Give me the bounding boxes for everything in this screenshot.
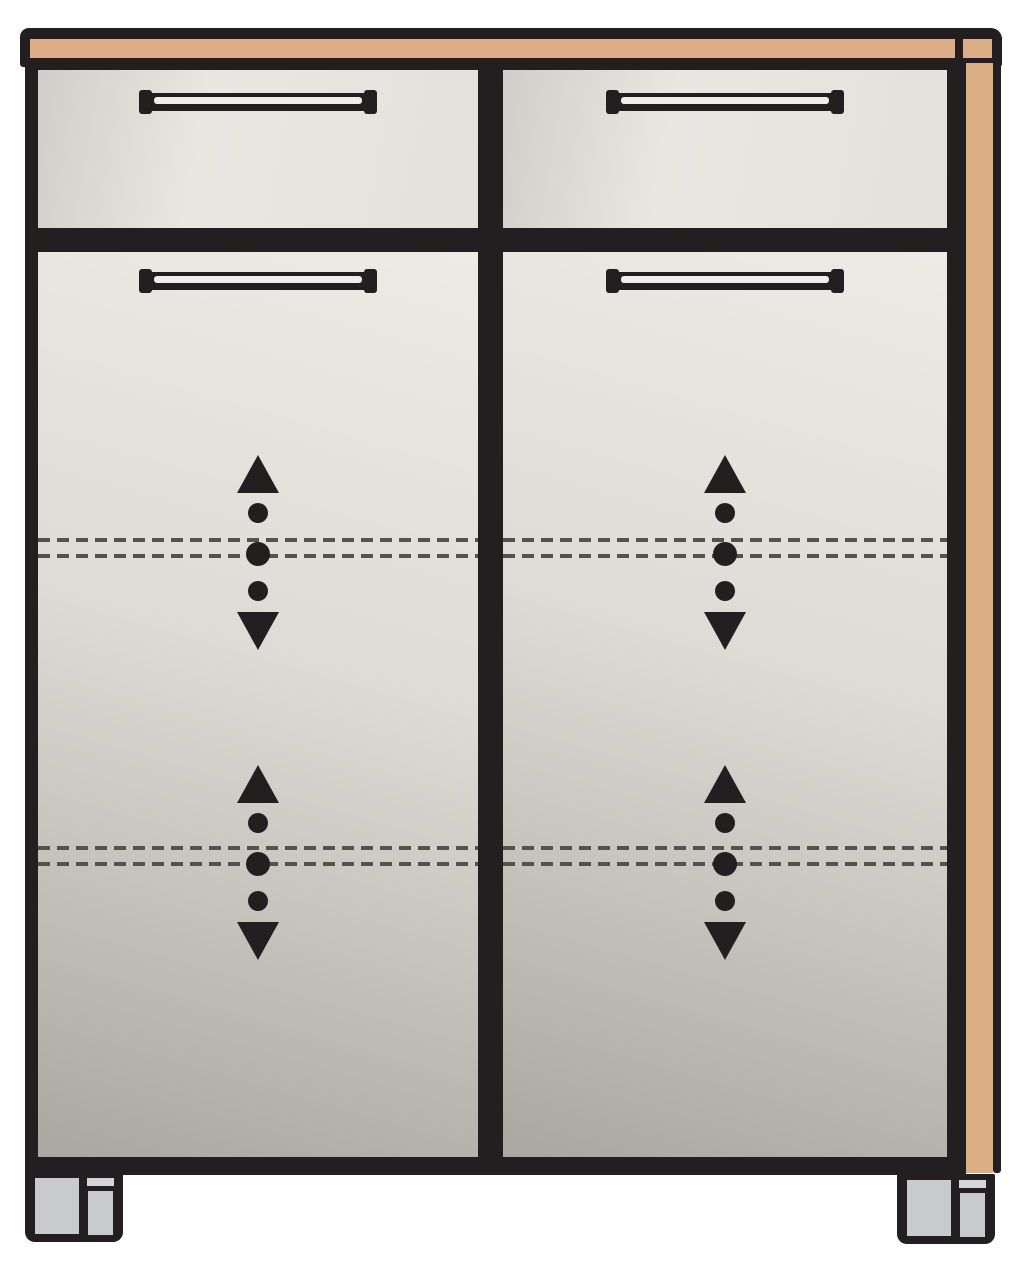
foot-front-pad (35, 1178, 79, 1234)
foot-side-top-pad (959, 1180, 986, 1188)
handle-drawer-left (141, 93, 375, 111)
handle-door-left (141, 272, 375, 290)
handle-slot (154, 97, 362, 104)
foot-right (897, 1174, 995, 1244)
door-right (503, 252, 947, 1157)
handle-slot (621, 97, 829, 104)
door-left (38, 252, 478, 1157)
dot-icon (248, 891, 268, 911)
dot-icon (715, 813, 735, 833)
dot-icon (246, 542, 270, 566)
cabinet-side-edge (993, 63, 1001, 1173)
dot-icon (713, 542, 737, 566)
shelf-indicator-upper-right (704, 455, 746, 650)
handle-door-right (608, 272, 842, 290)
wood-top-end-cap (963, 39, 992, 58)
foot-side-pad (88, 1191, 113, 1235)
down-arrow-icon (704, 922, 746, 960)
dot-icon (248, 503, 268, 523)
wood-top-trim (30, 39, 955, 58)
down-arrow-icon (704, 612, 746, 650)
dot-icon (246, 852, 270, 876)
dot-icon (715, 581, 735, 601)
foot-side-top-pad (87, 1178, 114, 1186)
shelf-indicator-upper-left (237, 455, 279, 650)
shelf-indicator-lower-right (704, 765, 746, 960)
foot-front-pad (907, 1180, 951, 1236)
cabinet-diagram (0, 0, 1024, 1280)
foot-left (25, 1172, 123, 1242)
down-arrow-icon (237, 922, 279, 960)
dot-icon (715, 891, 735, 911)
shelf-indicator-lower-left (237, 765, 279, 960)
handle-slot (154, 276, 362, 283)
up-arrow-icon (704, 455, 746, 493)
foot-side-pad (960, 1193, 985, 1237)
up-arrow-icon (704, 765, 746, 803)
dot-icon (248, 813, 268, 833)
wood-side-trim (966, 63, 993, 1173)
dot-icon (248, 581, 268, 601)
handle-slot (621, 276, 829, 283)
dot-icon (715, 503, 735, 523)
up-arrow-icon (237, 765, 279, 803)
down-arrow-icon (237, 612, 279, 650)
handle-drawer-right (608, 93, 842, 111)
dot-icon (713, 852, 737, 876)
up-arrow-icon (237, 455, 279, 493)
